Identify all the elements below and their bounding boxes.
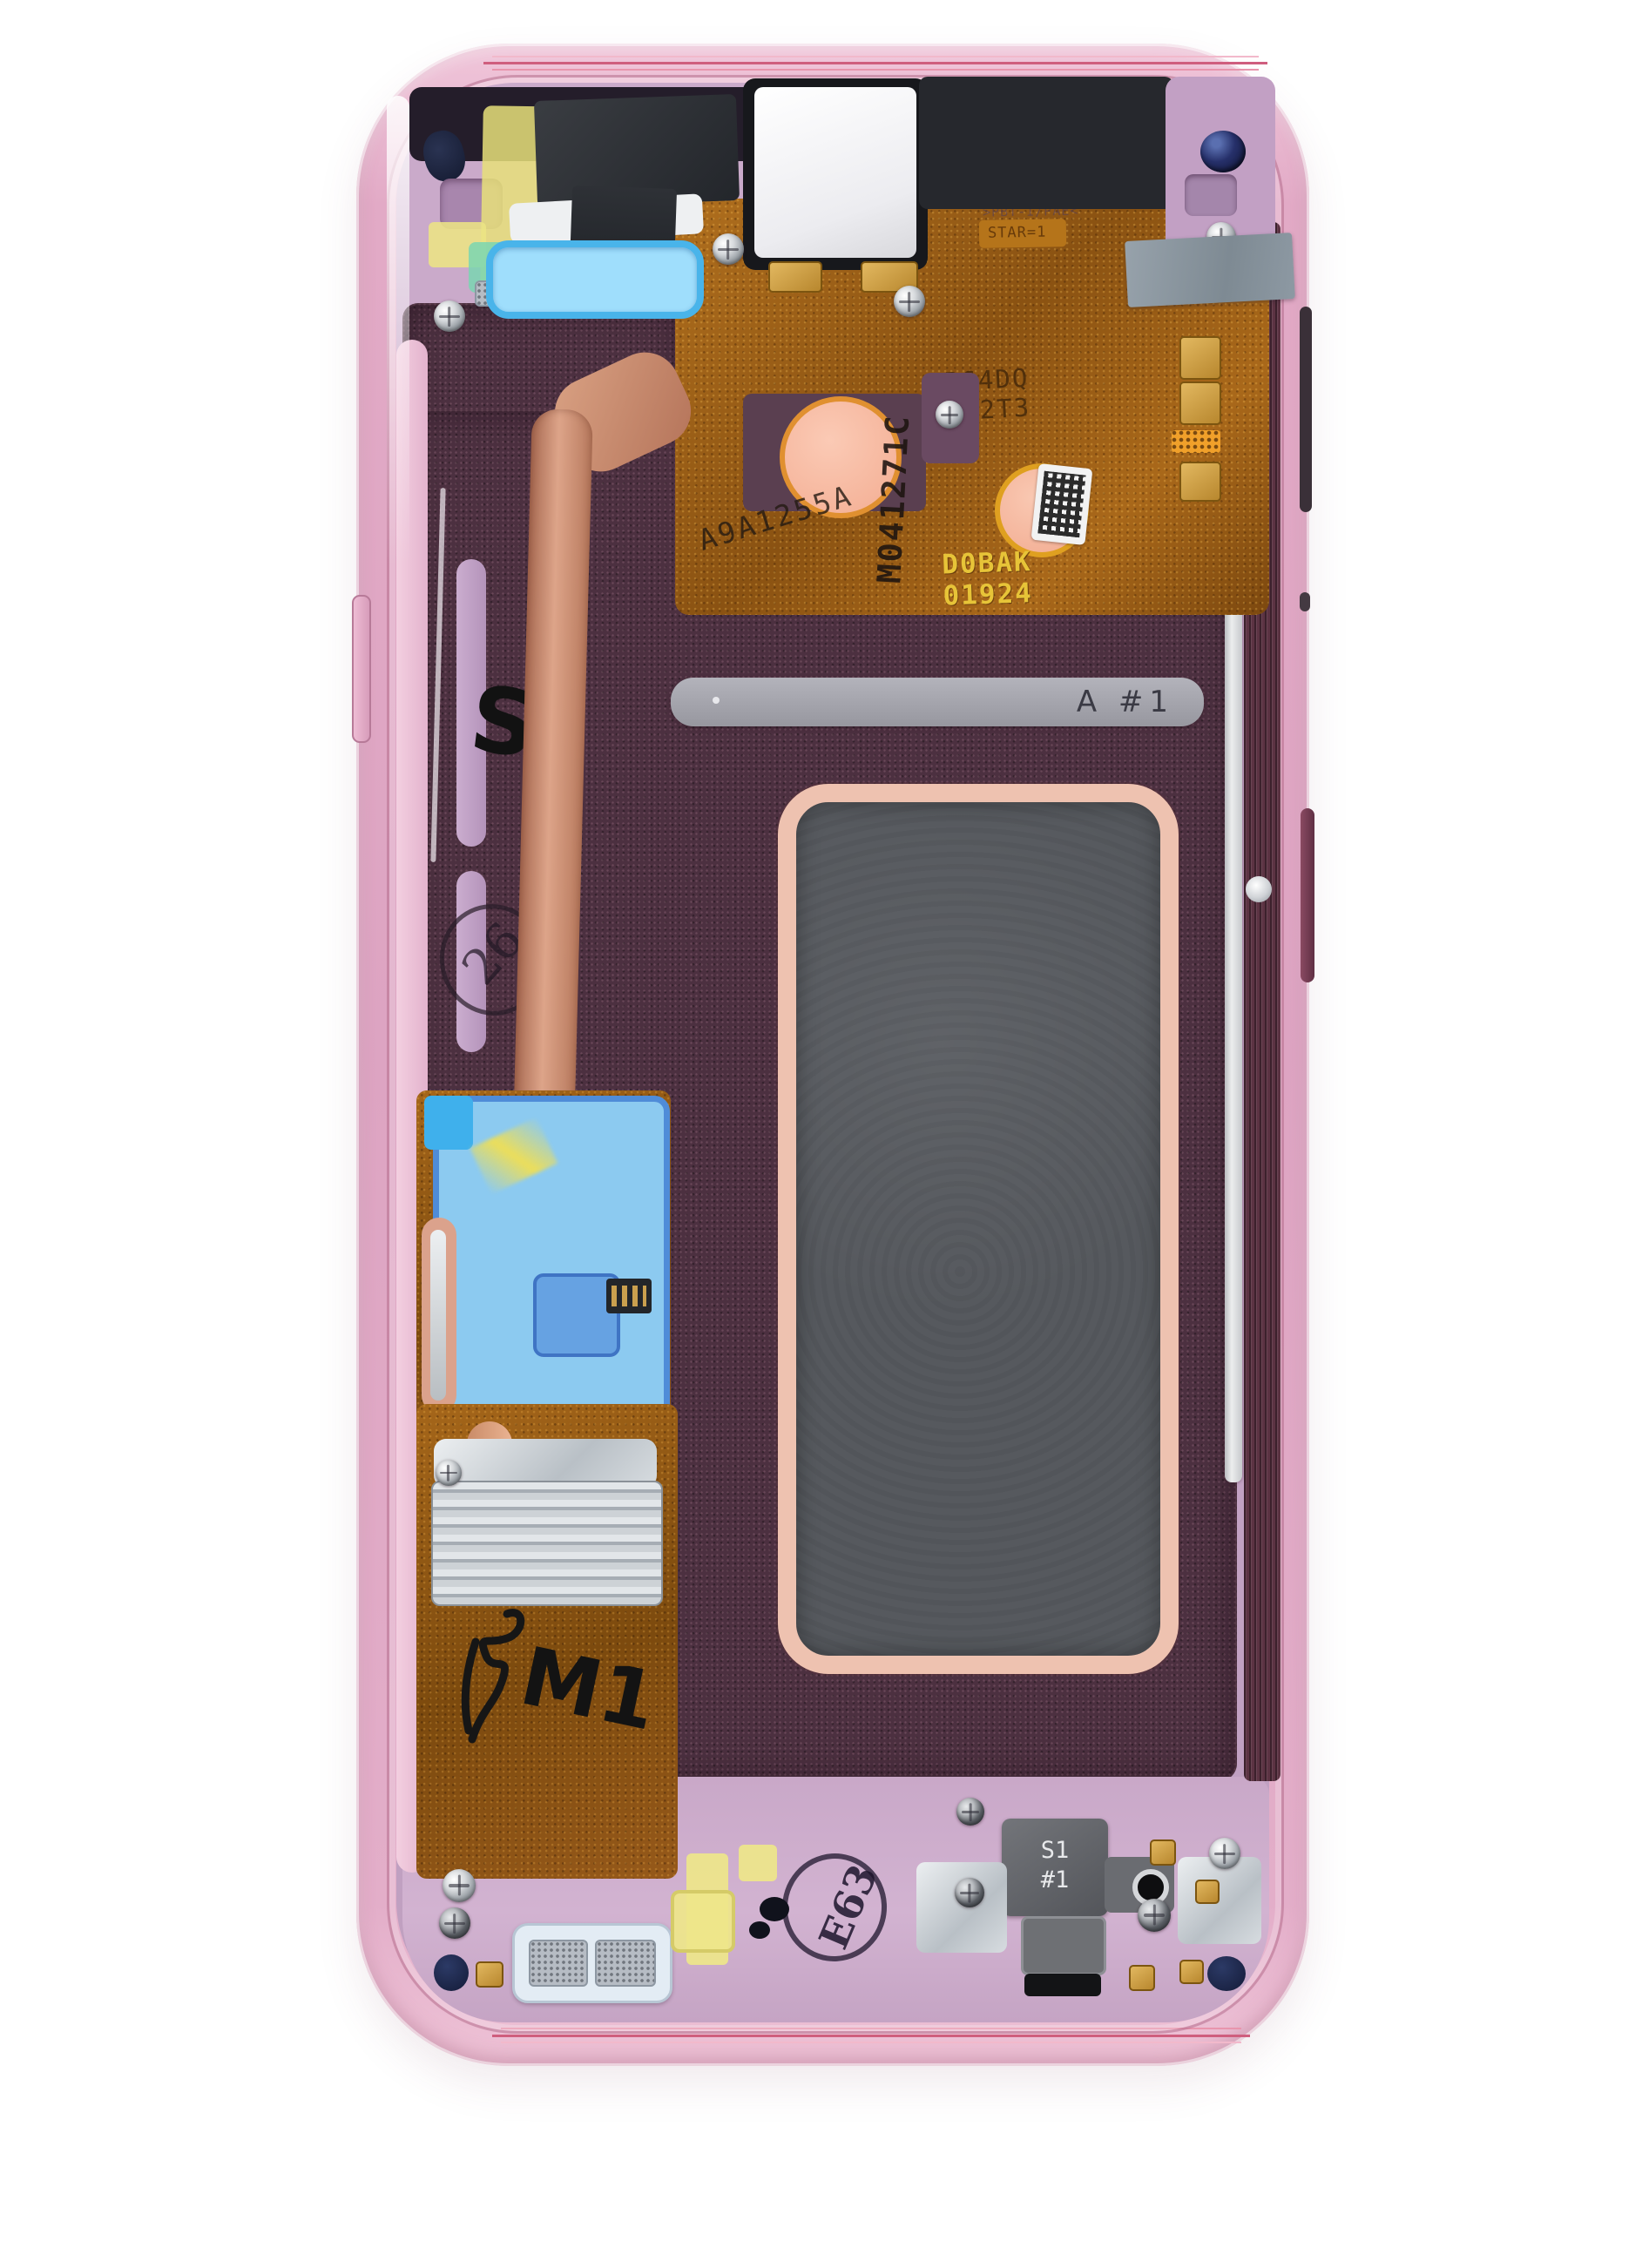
display-backplate-window: [778, 784, 1179, 1674]
gold-ic: [1195, 1880, 1220, 1904]
speaker-mesh: [595, 1940, 656, 1987]
screw: [936, 401, 963, 429]
screw: [439, 1907, 470, 1939]
port-label-line2: #1: [1002, 1866, 1108, 1895]
screw: [436, 1460, 462, 1486]
charging-port-bracket: S1 #1: [1002, 1819, 1108, 1916]
flex-gold-pad: [1179, 336, 1221, 380]
loudspeaker-frame: [512, 1923, 672, 2003]
ink-blob: [760, 1897, 789, 1921]
qc-stamp-text: E63: [810, 1858, 887, 1955]
screw: [1209, 1838, 1240, 1869]
screw-hole: [1246, 876, 1272, 902]
blue-film-corner: [424, 1096, 473, 1150]
ridged-shield-plate: [431, 1481, 663, 1606]
frame-pinstripe: [501, 2042, 1241, 2043]
gold-ic: [476, 1961, 503, 1988]
yellow-tape: [739, 1845, 777, 1881]
bracket-dot: [713, 697, 720, 704]
flex-print-line1: D0BAK: [942, 544, 1073, 580]
blue-gasket: [486, 240, 704, 319]
sensor-blob: [1207, 1956, 1246, 1991]
port-bracket-label: S1 #1: [1002, 1836, 1108, 1895]
flex-gold-pad: [1179, 462, 1221, 502]
flex-print-code: D0BAK 01924: [942, 544, 1075, 615]
flex-small-text: STAR=1: [988, 223, 1066, 244]
volume-button: [352, 595, 371, 743]
screw: [443, 1869, 476, 1902]
yellow-tape: [671, 1890, 735, 1953]
power-button: [1301, 808, 1314, 982]
screw: [713, 233, 744, 265]
screw: [955, 1878, 984, 1907]
side-pill-core: [430, 1230, 446, 1401]
gold-ic: [1179, 1960, 1204, 1984]
camera-contact-pad: [768, 261, 822, 293]
flex-gold-pad: [1179, 381, 1221, 425]
screw: [1138, 1899, 1171, 1932]
iris-camera-lens: [1200, 131, 1246, 172]
front-camera-window: [754, 87, 916, 258]
frame-pinstripe: [492, 2035, 1250, 2037]
photo-canvas: M041271C A9A1255A B64DQ H22T3 D0BAK 0192…: [0, 0, 1642, 2268]
sensor-blob: [434, 1954, 469, 1991]
frame-pinstripe: [492, 69, 1259, 71]
smd-component: [606, 1279, 652, 1313]
side-bracket: [1178, 1857, 1261, 1944]
usb-port-slot: [1024, 1974, 1101, 1996]
housing-recess: [1185, 174, 1237, 216]
frame-pinstripe: [483, 62, 1267, 64]
gray-tape-strip: [1125, 233, 1295, 307]
gold-ic: [1150, 1839, 1176, 1866]
antenna-tab: [1300, 592, 1310, 611]
port-inner-block: [1021, 1916, 1106, 1975]
bracket-bar-label: A #1: [1077, 685, 1174, 719]
speaker-mesh: [529, 1940, 588, 1987]
flex-print-line2: 01924: [943, 576, 1074, 611]
shield-bracket-bar: A #1: [671, 678, 1204, 726]
screw: [956, 1798, 984, 1826]
screw: [894, 286, 925, 317]
ink-blob: [749, 1921, 770, 1939]
earpiece-cavity: [919, 77, 1173, 209]
smd-pads: [612, 1286, 646, 1306]
antenna-tab: [1300, 307, 1312, 512]
frame-pinstripe: [492, 56, 1259, 57]
datamatrix-code: [1037, 471, 1085, 538]
frame-glare: [387, 96, 409, 566]
flex-perforated-strip: [1172, 430, 1220, 453]
screw: [434, 300, 465, 332]
gold-ic: [1129, 1965, 1155, 1991]
datamatrix-label: [1031, 463, 1093, 545]
side-bracket: [916, 1862, 1007, 1953]
port-label-line1: S1: [1002, 1836, 1108, 1866]
